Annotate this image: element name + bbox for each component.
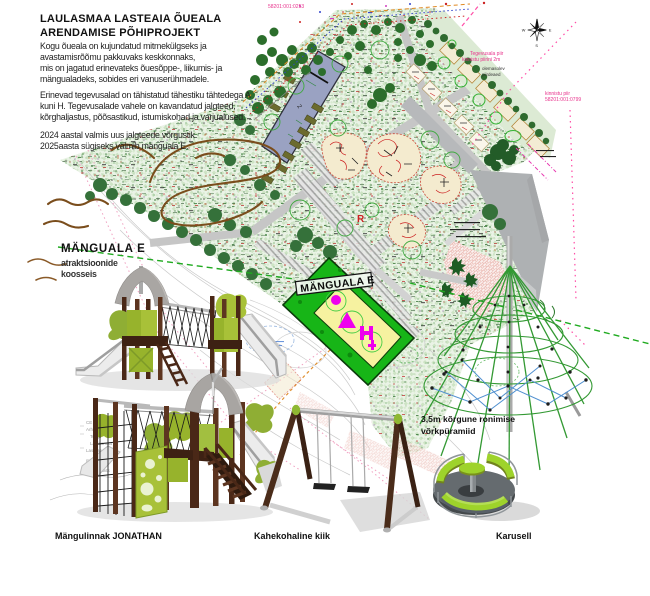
svg-text:W: W [522,29,526,33]
svg-text:58201:001:0253: 58201:001:0253 [268,4,304,10]
svg-text:piirdeaed: piirdeaed [482,72,501,77]
svg-text:58201:001:0799: 58201:001:0799 [545,97,581,103]
svg-text:S: S [535,44,538,48]
svg-text:R: R [357,214,365,225]
svg-text:E: E [549,29,552,33]
svg-text:olemasolev: olemasolev [482,66,506,71]
svg-text:kinnistu piirini 2m: kinnistu piirini 2m [462,57,500,63]
